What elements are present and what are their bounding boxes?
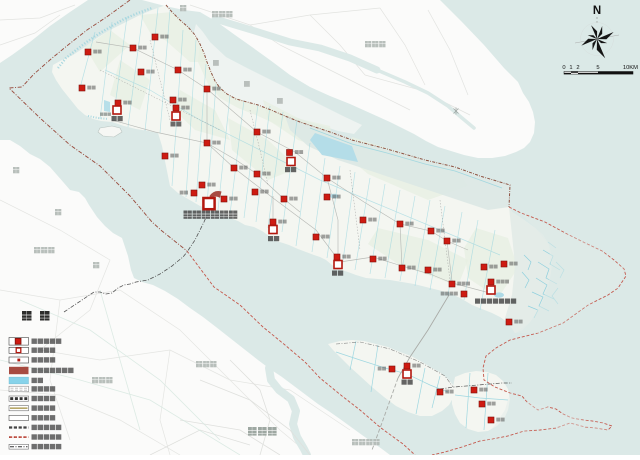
svg-text:0: 0	[562, 65, 565, 71]
svg-text:N: N	[593, 5, 601, 17]
svg-text:5: 5	[596, 65, 599, 71]
svg-text:1: 1	[569, 65, 572, 71]
svg-text:10KM: 10KM	[623, 65, 638, 71]
svg-text:2: 2	[576, 65, 579, 71]
